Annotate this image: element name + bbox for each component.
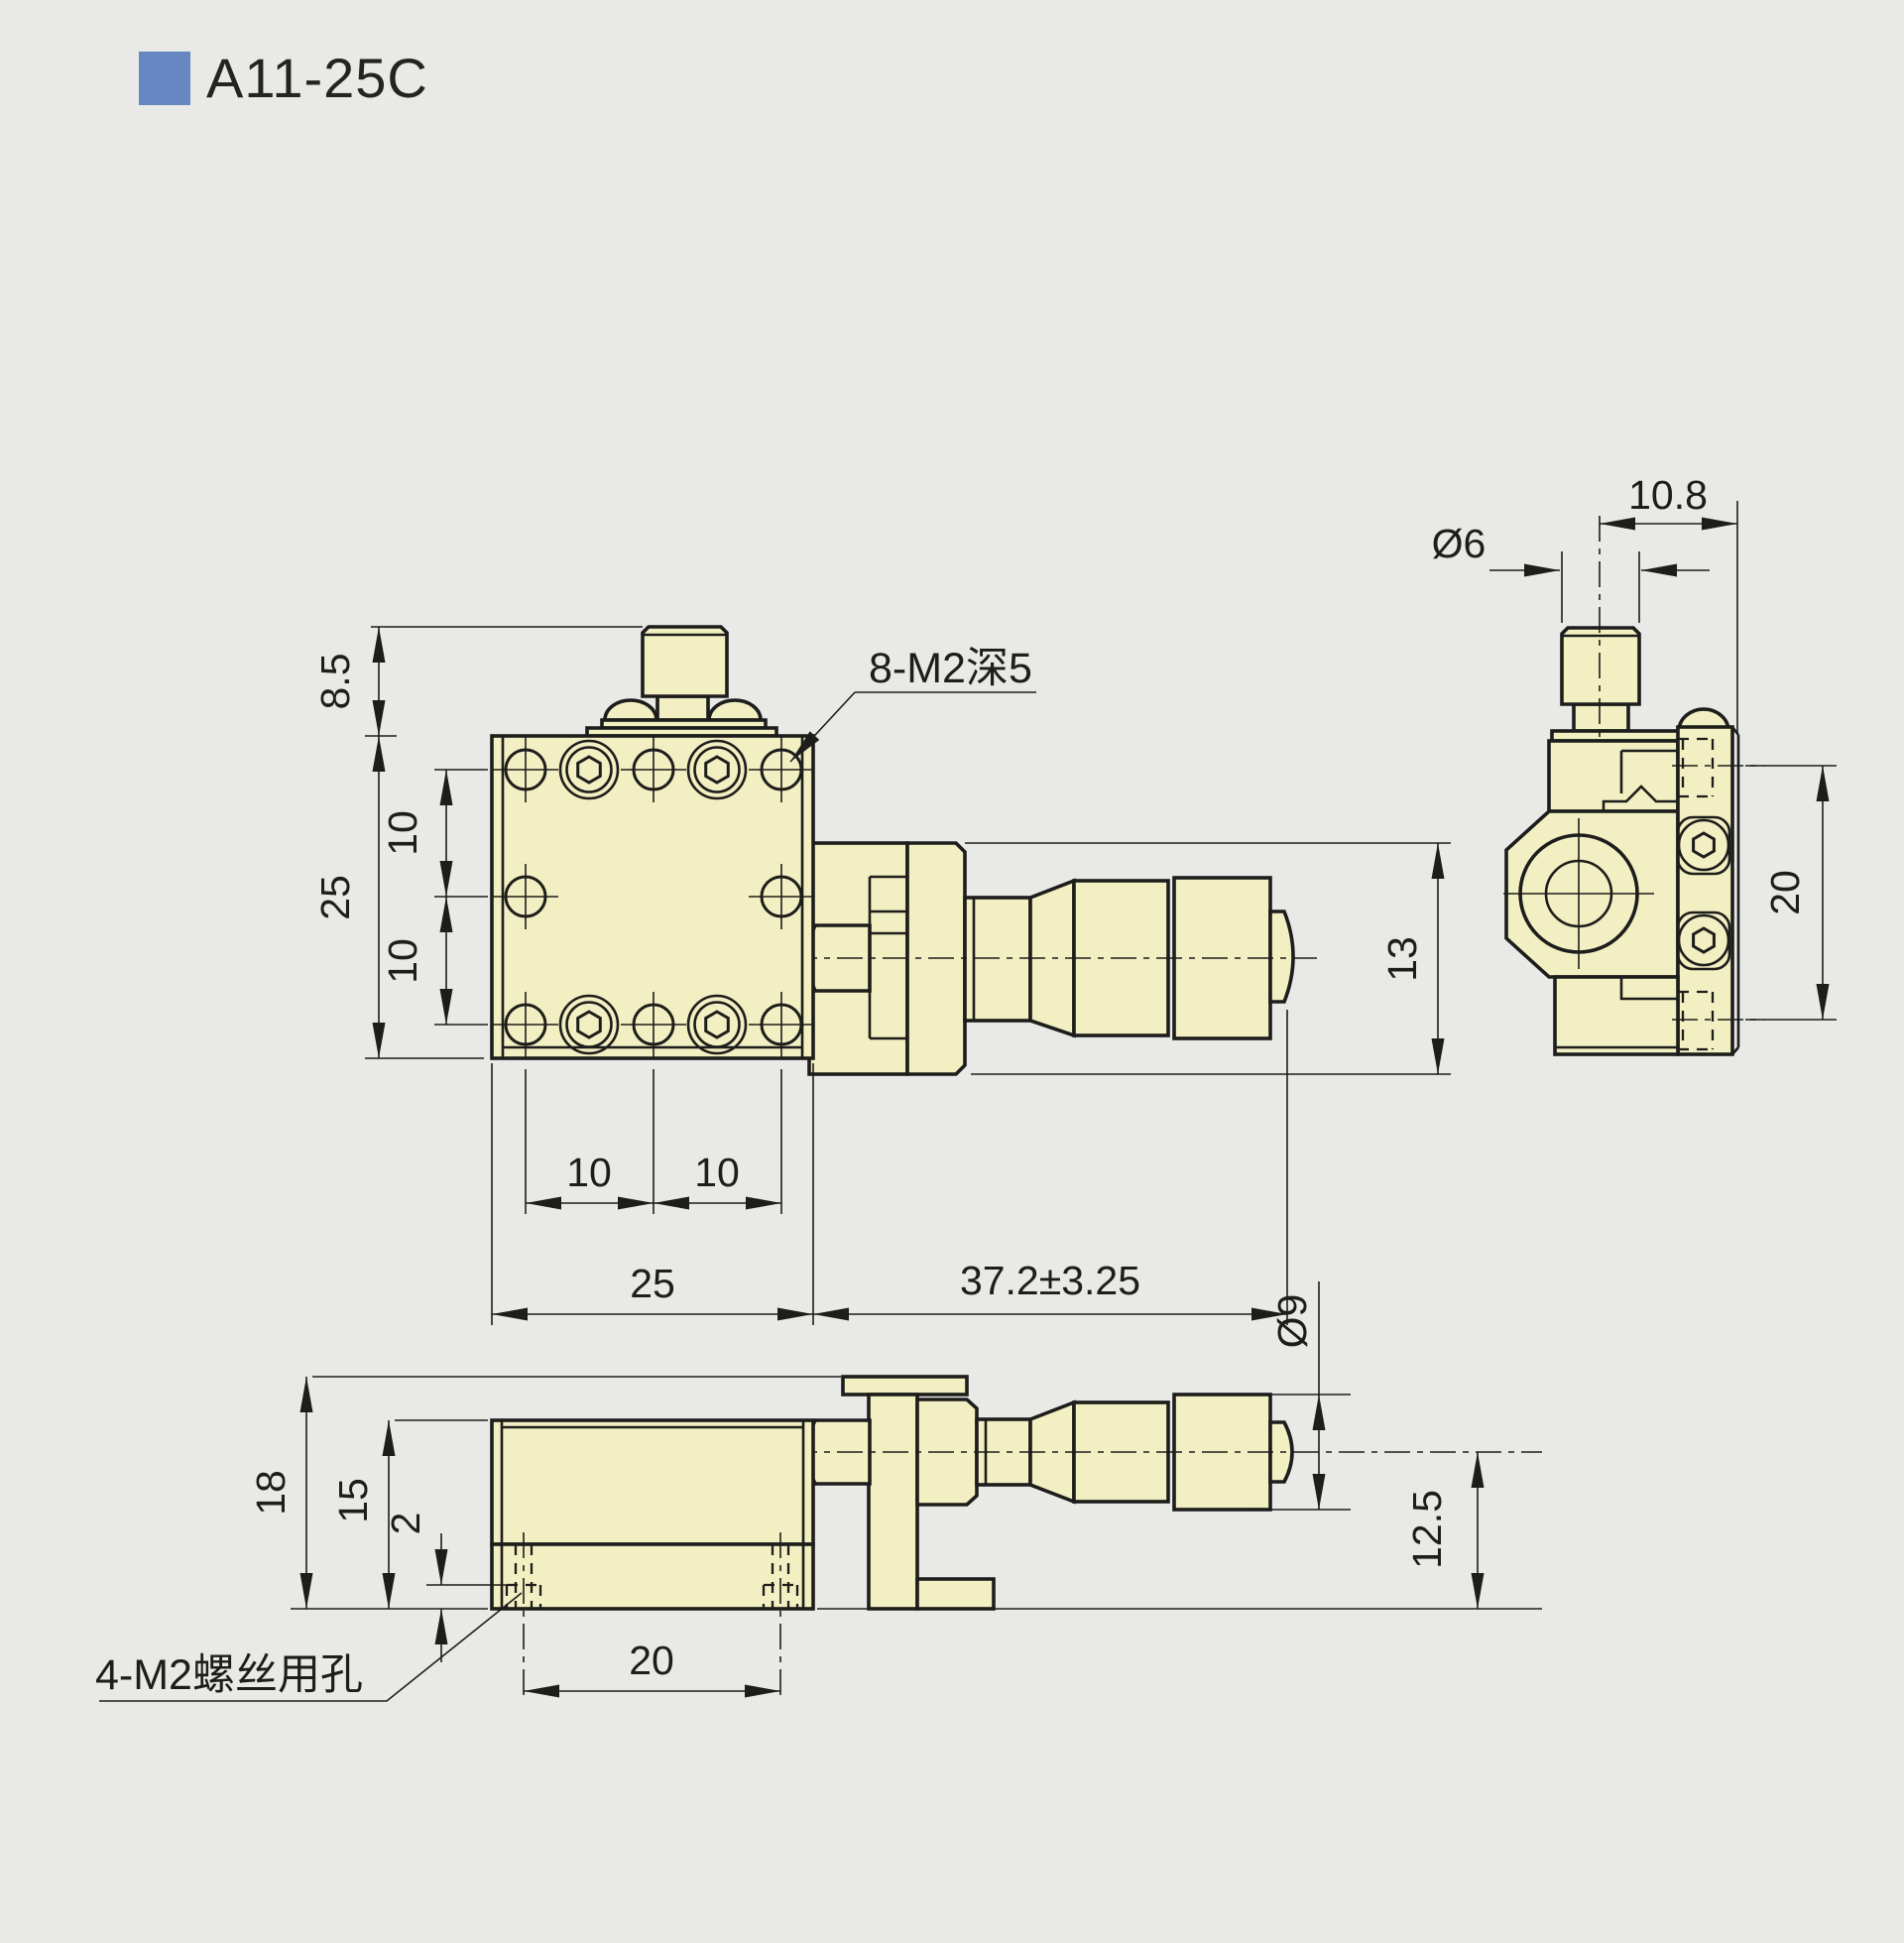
bottom-dimensions (99, 1281, 1542, 1701)
bottom-view: 18 15 2 20 Ø9 12.5 4-M2螺丝用孔 (95, 1281, 1542, 1701)
side-body (1503, 727, 1738, 1054)
dim-front-body-height: 25 (312, 875, 358, 920)
side-view: 10.8 Ø6 20 (1432, 472, 1837, 1054)
dim-front-hole-pitch-v1: 10 (380, 810, 425, 856)
dim-bottom-total-height: 18 (248, 1470, 294, 1516)
dim-bottom-base-hole-pitch: 20 (629, 1638, 674, 1683)
page: { "title": "A11-25C", "front_view": { "d… (0, 0, 1904, 1943)
dim-side-axis-to-face: 10.8 (1628, 472, 1708, 518)
front-view: 8.5 25 10 10 10 10 25 37.2±3.25 13 8-M2深… (312, 627, 1451, 1325)
dim-bottom-axis-height: 12.5 (1404, 1490, 1450, 1569)
dim-front-hole-pitch-v2: 10 (380, 938, 425, 984)
note-bottom-base-holes: 4-M2螺丝用孔 (95, 1651, 363, 1699)
dim-front-hole-pitch-h2: 10 (694, 1150, 740, 1195)
dim-front-hole-pitch-h1: 10 (566, 1150, 612, 1195)
dim-front-micrometer-travel: 37.2±3.25 (960, 1258, 1140, 1303)
dim-front-body-width: 25 (630, 1261, 675, 1306)
dim-bottom-body-height: 15 (330, 1478, 376, 1523)
dim-side-hole-pitch: 20 (1762, 870, 1808, 915)
bottom-body (492, 1420, 813, 1609)
front-micrometer (791, 843, 1317, 1074)
technical-drawing-canvas: 8.5 25 10 10 10 10 25 37.2±3.25 13 8-M2深… (0, 0, 1904, 1943)
front-knob-assembly (587, 627, 776, 736)
dim-side-knob-diameter: Ø6 (1432, 521, 1487, 566)
dim-front-knob-height: 8.5 (312, 654, 358, 710)
note-front-platform-holes: 8-M2深5 (869, 645, 1032, 692)
dim-front-bracket-height: 13 (1379, 936, 1425, 982)
side-knob-assembly (1552, 516, 1729, 744)
dim-bottom-hole-offset: 2 (383, 1513, 428, 1535)
dim-bottom-thimble-diameter: Ø9 (1269, 1294, 1315, 1349)
